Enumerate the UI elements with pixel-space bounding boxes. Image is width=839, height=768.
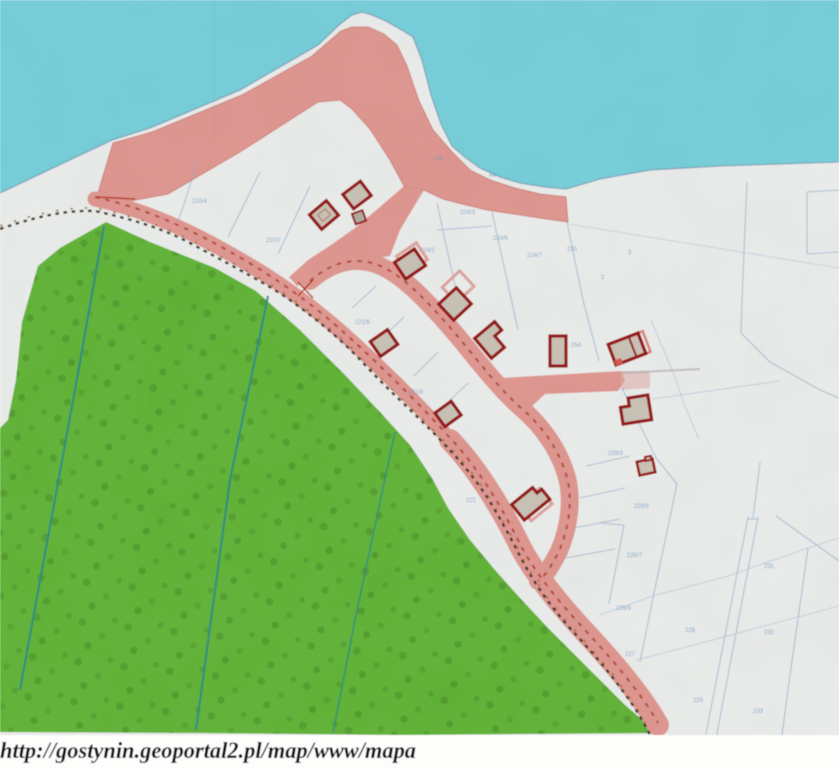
svg-text:http://gostynin.geoportal2.pl/: http://gostynin.geoportal2.pl/map/www/ma… <box>0 738 416 764</box>
